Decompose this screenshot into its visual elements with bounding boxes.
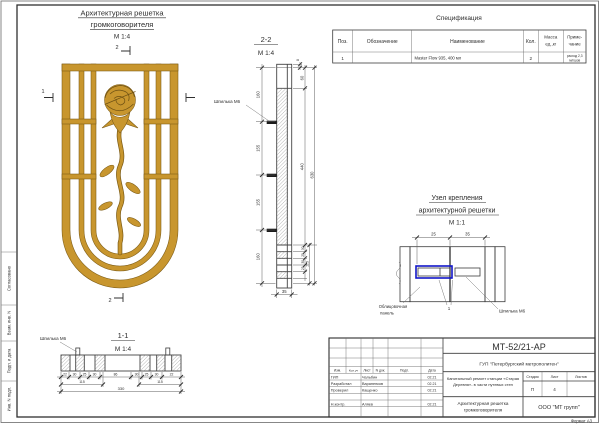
section22-hatch-cell1: [277, 252, 287, 259]
svg-text:25: 25: [301, 253, 305, 257]
section22-hatch-cell2: [277, 272, 287, 279]
node-panel-label2: панель: [380, 311, 395, 316]
svg-text:155: 155: [256, 198, 261, 206]
front-title-line2: громкоговорителя: [91, 20, 154, 29]
node-title-line1: Узел крепления: [431, 195, 482, 202]
svg-text:160: 160: [256, 91, 261, 99]
svg-text:30: 30: [155, 373, 159, 377]
svg-text:86: 86: [114, 373, 118, 377]
node-title-line2: архитектурной решетки: [419, 207, 496, 215]
svg-text:2: 2: [530, 56, 533, 61]
section22-hatch-area: [277, 88, 287, 245]
svg-text:155: 155: [256, 144, 261, 152]
svg-text:N док.: N док.: [376, 369, 386, 373]
spec-title: Спецификация: [436, 15, 482, 22]
svg-text:25: 25: [83, 373, 87, 377]
node-scale-label: М 1:1: [449, 220, 466, 227]
project-name-line2: Деревня»- в части путевых стен: [453, 382, 513, 387]
svg-text:60: 60: [300, 75, 305, 80]
svg-text:Кащенко: Кащенко: [362, 389, 377, 393]
section22-scale: М 1:4: [258, 50, 275, 57]
format-label: Формат А3: [571, 418, 593, 423]
margin-vzam-label: Взам. инв. N: [7, 311, 12, 335]
grille-top-bar: [62, 64, 178, 71]
stage-value: П: [531, 387, 534, 392]
organization-name: ООО "МТ групп": [538, 405, 579, 411]
svg-text:1: 1: [341, 56, 344, 61]
svg-text:Лист: Лист: [363, 369, 371, 373]
svg-text:25: 25: [431, 232, 436, 237]
project-name-line1: Капитальный ремонт станции «Старая: [447, 376, 519, 381]
svg-text:Дата: Дата: [428, 369, 436, 373]
svg-text:Чальбин: Чальбин: [362, 375, 377, 379]
grille-tie-left-lower: [62, 174, 96, 179]
margin-podp-data-label: Подп. и дата: [7, 348, 12, 373]
svg-text:25: 25: [145, 373, 149, 377]
drawing-canvas: Согласовано Взам. инв. N Подп. и дата Ин…: [0, 0, 600, 424]
svg-text:440: 440: [300, 163, 305, 171]
svg-text:Вараненков: Вараненков: [362, 382, 383, 386]
svg-text:Master Flow 935, 400 мл: Master Flow 935, 400 мл: [415, 56, 462, 61]
svg-text:расход 2,3: расход 2,3: [567, 54, 583, 58]
svg-text:мл/шов: мл/шов: [569, 59, 580, 63]
svg-text:Проверил: Проверил: [331, 389, 349, 393]
node-stud-label: Шпилька М6: [499, 309, 526, 314]
svg-text:Наименование: Наименование: [450, 39, 485, 45]
svg-text:30: 30: [301, 246, 305, 250]
front-title-line1: Архитектурная решетка: [80, 9, 164, 18]
grille-tie-right-lower: [144, 174, 178, 179]
section11-scale: М 1:4: [115, 346, 132, 353]
stage-header: Стадия: [526, 375, 538, 379]
svg-text:8: 8: [296, 59, 300, 61]
svg-text:160: 160: [256, 253, 261, 261]
svg-text:30: 30: [93, 373, 97, 377]
svg-text:ГИП: ГИП: [331, 375, 339, 379]
front-scale-label: М 1:4: [114, 34, 131, 41]
svg-text:2: 2: [115, 45, 118, 51]
svg-text:02.21: 02.21: [428, 375, 437, 379]
svg-text:115: 115: [306, 261, 310, 267]
svg-text:ед.,кг: ед.,кг: [545, 42, 556, 47]
svg-text:Разработал: Разработал: [331, 382, 352, 386]
svg-text:30: 30: [135, 373, 139, 377]
svg-text:35: 35: [465, 232, 470, 237]
svg-text:02.21: 02.21: [428, 382, 437, 386]
svg-text:Обозначение: Обозначение: [367, 39, 398, 45]
section11-title: 1-1: [118, 331, 129, 340]
svg-text:Аляев: Аляев: [362, 402, 373, 406]
svg-text:22: 22: [170, 373, 174, 377]
section22-title: 2-2: [261, 35, 272, 44]
grille-tie-right-upper: [144, 119, 178, 124]
svg-text:Н.контр.: Н.контр.: [331, 402, 346, 406]
sheets-header: Листов: [575, 375, 587, 379]
margin-inv-podl-label: Инв. N подл.: [7, 387, 12, 412]
drawing-sheet: Согласовано Взам. инв. N Подп. и дата Ин…: [0, 0, 600, 424]
sheet-title-line1: Архитектурная решетка: [458, 401, 509, 406]
document-number: МТ-52/21-АР: [492, 342, 546, 352]
svg-text:25: 25: [301, 266, 305, 270]
svg-text:Приме-: Приме-: [567, 35, 583, 40]
margin-soglasovano-label: Согласовано: [7, 265, 12, 291]
svg-text:чание: чание: [569, 42, 582, 47]
grille-tie-left-upper: [62, 119, 96, 124]
svg-text:2: 2: [108, 298, 111, 304]
svg-text:30: 30: [73, 373, 77, 377]
sheet-title-line2: громкоговорителя: [464, 408, 503, 413]
svg-text:22: 22: [63, 373, 67, 377]
svg-text:Поз.: Поз.: [338, 39, 348, 45]
section11-stud-label: Шпилька М6: [40, 336, 67, 341]
svg-text:02.21: 02.21: [428, 389, 437, 393]
svg-text:Изм.: Изм.: [334, 369, 341, 373]
svg-text:630: 630: [310, 171, 315, 179]
company-name: ГУП "Петербургский метрополитен": [479, 361, 558, 368]
section22-stud-label: Шпилька М6: [214, 99, 241, 104]
svg-text:30: 30: [301, 260, 305, 264]
svg-text:Кол.уч: Кол.уч: [349, 369, 359, 373]
svg-text:02.21: 02.21: [428, 402, 437, 406]
svg-text:Подп.: Подп.: [400, 369, 409, 373]
svg-text:35: 35: [282, 289, 287, 294]
svg-text:Масса: Масса: [544, 35, 558, 40]
svg-text:115: 115: [157, 380, 163, 384]
svg-text:330: 330: [118, 386, 125, 391]
svg-text:Кол.: Кол.: [526, 39, 536, 45]
svg-text:1: 1: [41, 89, 44, 95]
svg-text:115: 115: [79, 380, 85, 384]
node-panel-label1: Облицовочная: [379, 304, 407, 309]
sheet-header: Лист: [551, 375, 559, 379]
